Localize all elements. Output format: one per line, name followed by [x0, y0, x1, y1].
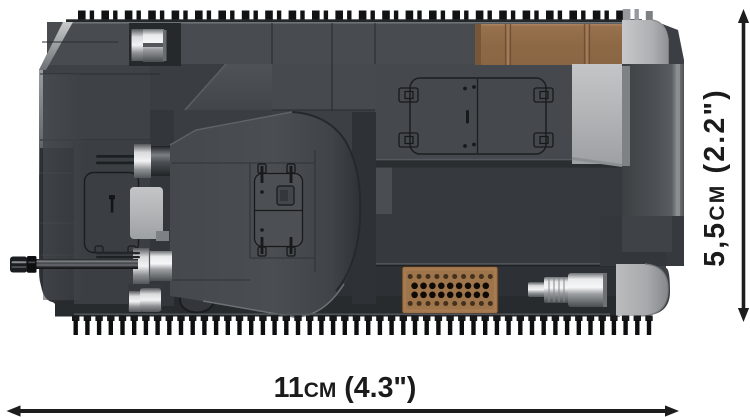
- svg-text:5,5CM (2.2"): 5,5CM (2.2"): [699, 88, 731, 267]
- svg-text:11CM (4.3"): 11CM (4.3"): [274, 372, 417, 404]
